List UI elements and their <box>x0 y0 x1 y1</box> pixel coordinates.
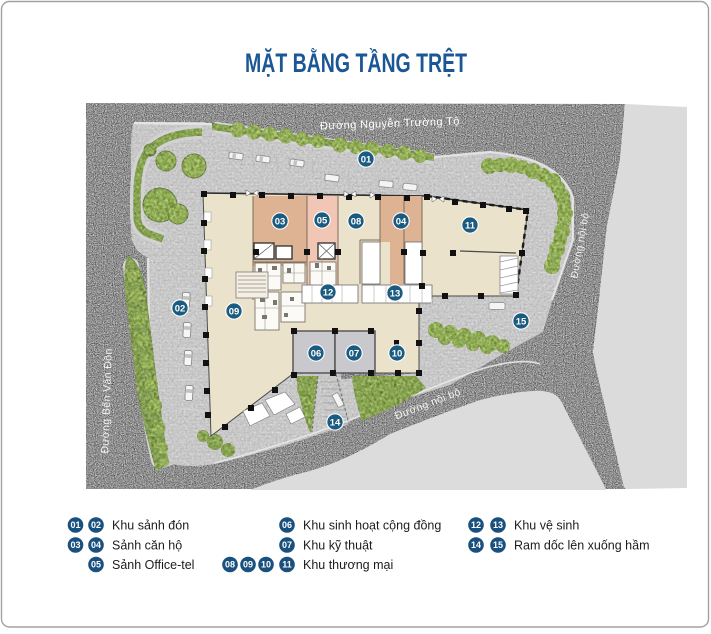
svg-text:11: 11 <box>465 220 476 231</box>
svg-text:06: 06 <box>311 348 322 359</box>
svg-text:07: 07 <box>349 348 360 359</box>
svg-text:13: 13 <box>493 520 503 530</box>
svg-text:15: 15 <box>516 316 527 327</box>
svg-text:08: 08 <box>225 560 235 570</box>
svg-text:12: 12 <box>471 520 481 530</box>
svg-text:01: 01 <box>70 520 80 530</box>
svg-text:06: 06 <box>282 520 292 530</box>
svg-text:Ram dốc lên xuống hầm: Ram dốc lên xuống hầm <box>514 539 650 553</box>
svg-text:13: 13 <box>390 288 401 299</box>
svg-text:05: 05 <box>317 215 328 226</box>
svg-text:Khu sảnh đón: Khu sảnh đón <box>112 519 189 533</box>
svg-text:04: 04 <box>396 216 407 227</box>
svg-text:01: 01 <box>361 154 372 165</box>
svg-text:10: 10 <box>392 348 403 359</box>
svg-text:04: 04 <box>91 540 101 550</box>
svg-text:09: 09 <box>243 560 253 570</box>
svg-text:14: 14 <box>471 540 481 550</box>
svg-text:09: 09 <box>229 306 240 317</box>
svg-text:Khu kỹ thuật: Khu kỹ thuật <box>303 539 373 553</box>
svg-text:02: 02 <box>91 520 101 530</box>
svg-text:10: 10 <box>261 560 271 570</box>
svg-text:MẶT BẰNG TẦNG TRỆT: MẶT BẰNG TẦNG TRỆT <box>245 47 467 78</box>
svg-text:Sảnh căn hộ: Sảnh căn hộ <box>112 539 182 553</box>
svg-text:15: 15 <box>493 540 503 550</box>
svg-text:14: 14 <box>330 417 341 428</box>
svg-text:Khu sinh hoạt cộng đồng: Khu sinh hoạt cộng đồng <box>303 519 441 533</box>
svg-text:Khu vệ sinh: Khu vệ sinh <box>514 519 579 533</box>
svg-text:03: 03 <box>275 216 286 227</box>
svg-text:12: 12 <box>323 287 334 298</box>
svg-text:Sảnh Office-tel: Sảnh Office-tel <box>112 558 194 572</box>
svg-text:07: 07 <box>282 540 292 550</box>
svg-text:Khu thương mại: Khu thương mại <box>303 558 393 572</box>
svg-text:02: 02 <box>175 303 186 314</box>
svg-text:11: 11 <box>282 560 292 570</box>
svg-text:03: 03 <box>70 540 80 550</box>
svg-text:05: 05 <box>91 560 101 570</box>
svg-text:08: 08 <box>351 216 362 227</box>
